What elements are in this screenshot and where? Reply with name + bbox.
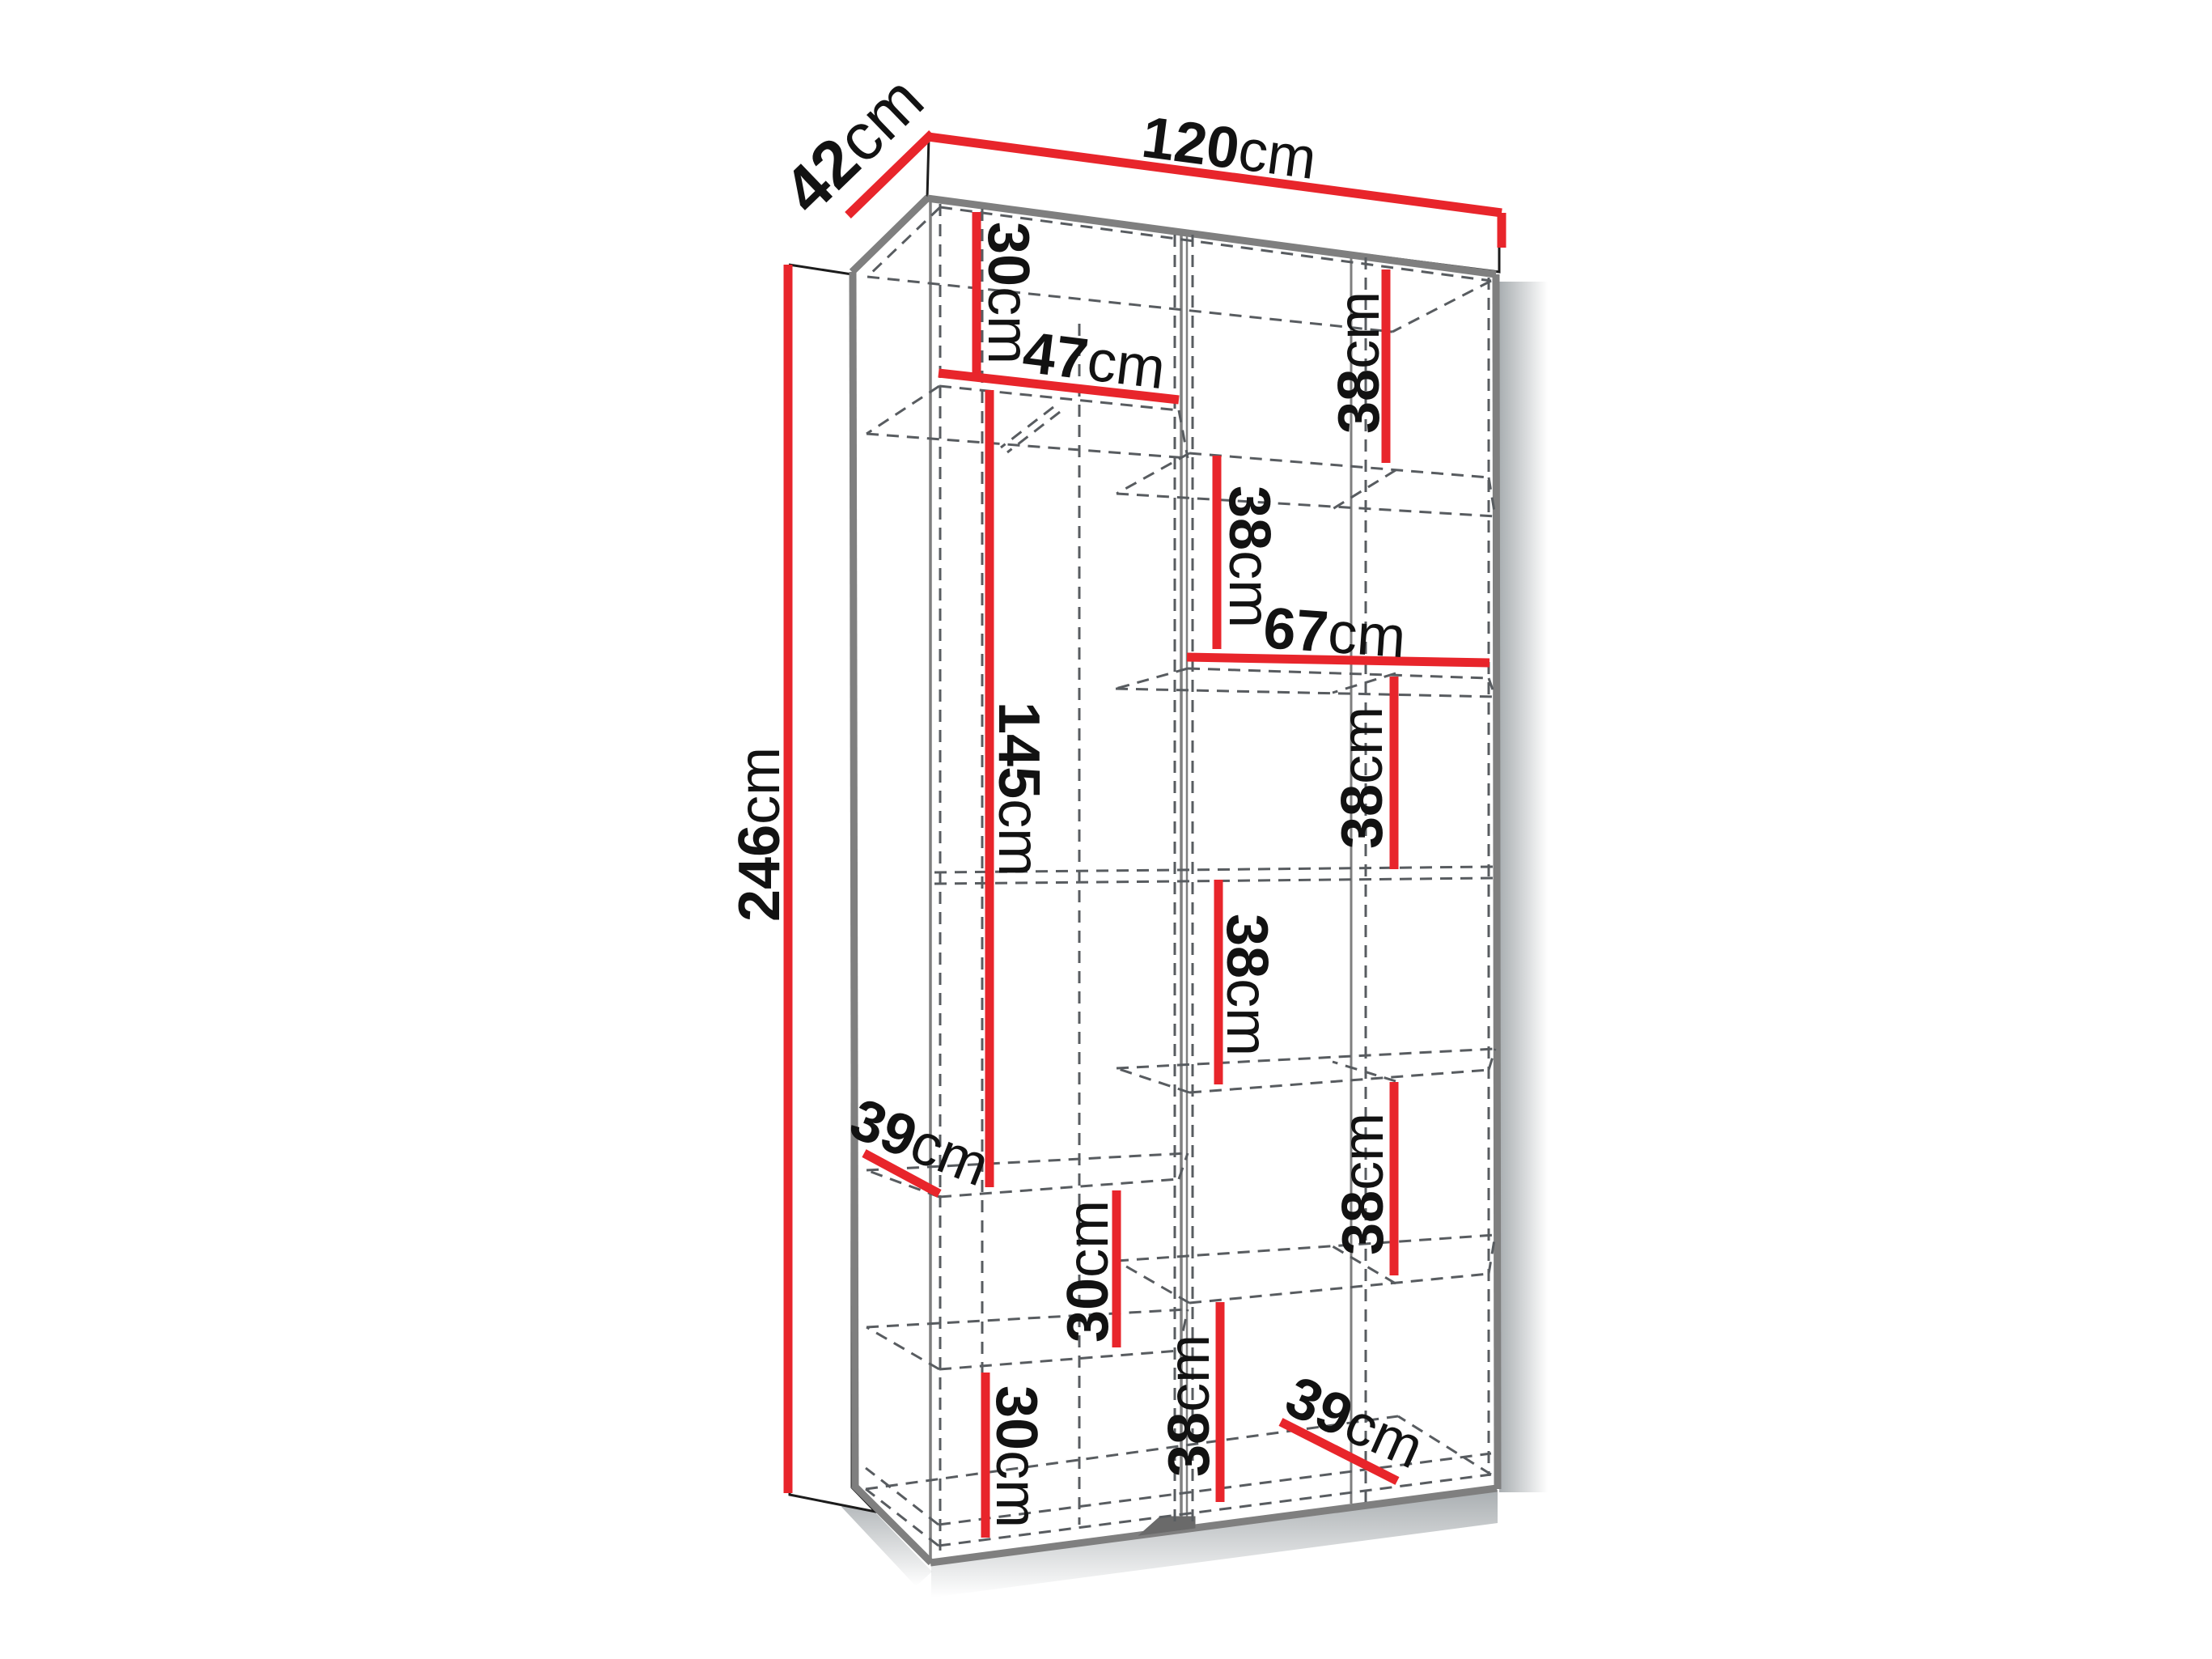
svg-text:30cm: 30cm xyxy=(1056,1200,1121,1343)
svg-text:30cm: 30cm xyxy=(984,1385,1049,1528)
svg-text:145cm: 145cm xyxy=(986,702,1051,876)
svg-text:67cm: 67cm xyxy=(1261,596,1408,670)
svg-text:38cm: 38cm xyxy=(1214,914,1279,1056)
svg-text:38cm: 38cm xyxy=(1330,706,1395,849)
svg-text:38cm: 38cm xyxy=(1157,1334,1222,1477)
svg-text:246cm: 246cm xyxy=(727,747,792,922)
svg-text:38cm: 38cm xyxy=(1327,291,1392,434)
svg-text:38cm: 38cm xyxy=(1331,1113,1396,1255)
